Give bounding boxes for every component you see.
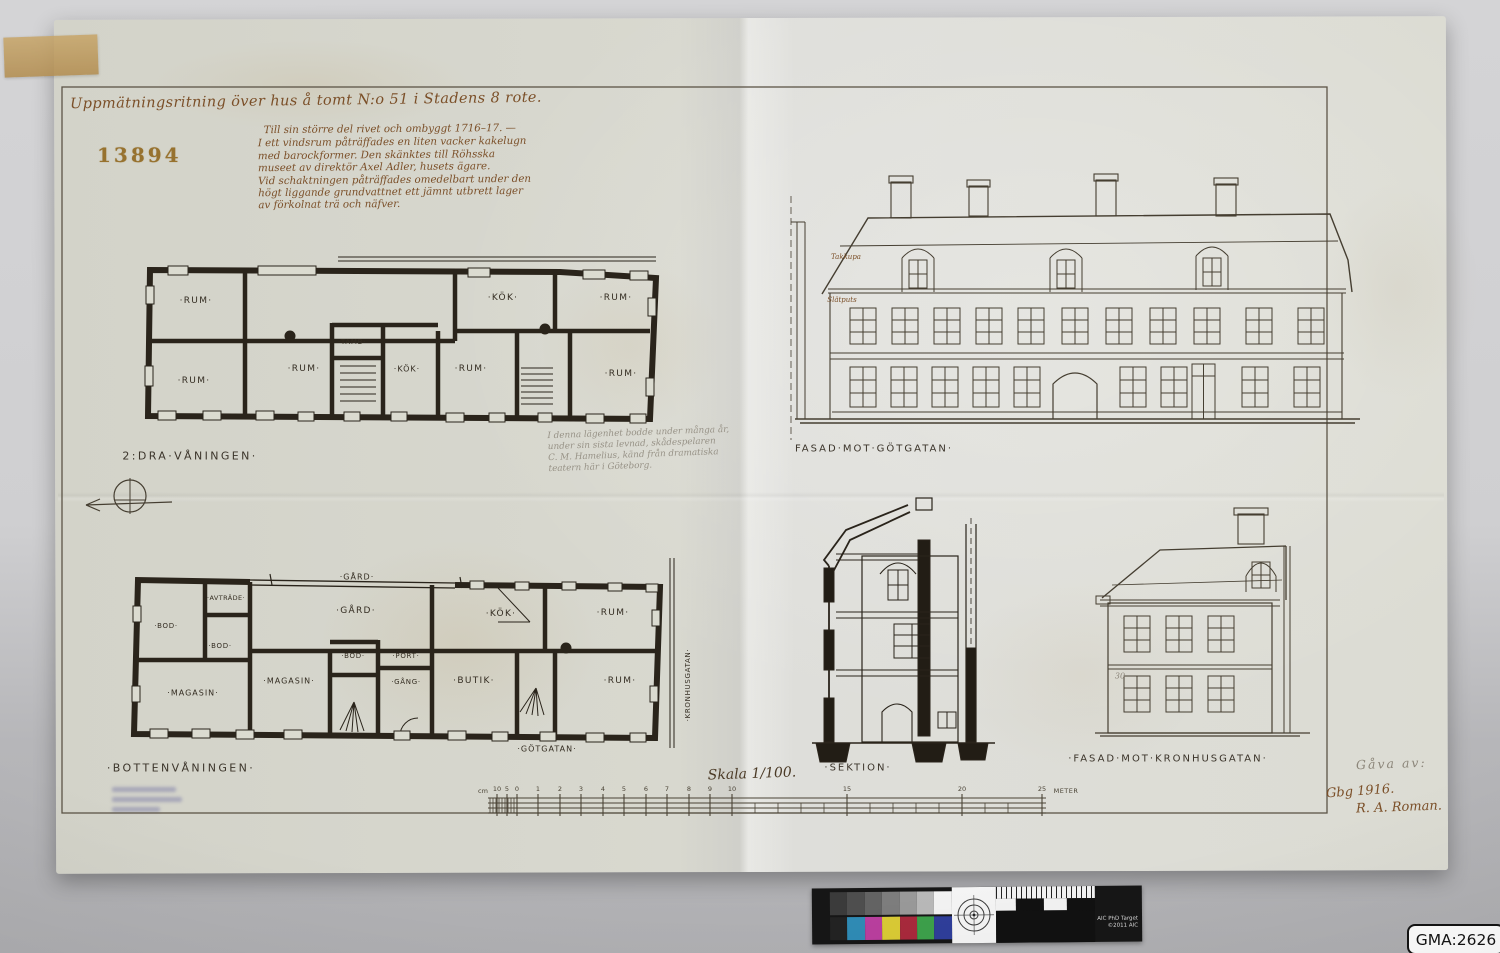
gray-patch-row (830, 891, 952, 915)
facade-annotation-wall: Slätputs (827, 296, 856, 304)
room-label: ·RUM· (604, 676, 637, 686)
color-calibration-target: AIC PhD Target ©2011 AIC (812, 886, 1142, 945)
archive-label-text: GMA:2626 (1416, 931, 1496, 949)
ink-note-line: av förkolnat trä och näfver. (258, 197, 531, 212)
bullseye-target (952, 887, 996, 943)
kronhusgatan-annotation: 30 (1115, 672, 1125, 681)
room-label: ·BOD· (154, 622, 178, 630)
scale-tick: 2 (558, 785, 562, 793)
facade-annotation-roof: Takkupa (831, 253, 861, 261)
ink-note: Till sin större del rivet och ombyggt 17… (258, 122, 532, 212)
scale-tick: 8 (687, 785, 691, 793)
calibration-label: AIC PhD Target ©2011 AIC (1095, 886, 1142, 942)
scale-tick: 3 (579, 785, 583, 793)
room-label: ·BOD· (208, 642, 232, 650)
street-label-kronhusgatan: ·KRONHUSGATAN· (684, 649, 692, 722)
scale-tick: 9 (708, 785, 712, 793)
scale-tick: 5 (622, 785, 626, 793)
scale-tick: 15 (843, 785, 851, 793)
elevation-caption-kronhusgatan: ·FASAD·MOT·KRONHUSGATAN· (1068, 754, 1268, 765)
scale-unit-meter: METER (1054, 787, 1079, 795)
room-label: ·GÅNG· (391, 678, 421, 686)
room-label: ·KÖK· (394, 365, 420, 374)
elevation-caption-gotgatan: FASAD·MOT·GÖTGATAN· (795, 444, 953, 455)
room-label: ·KÖK· (488, 293, 519, 303)
room-label: ·PORT· (392, 652, 419, 660)
scale-tick: 7 (665, 785, 669, 793)
scale-unit-cm: cm (478, 787, 488, 795)
room-label: ·RUM· (597, 608, 630, 618)
room-label: ·RUM· (288, 364, 321, 374)
bullseye-icon (954, 895, 994, 935)
calibration-patches (830, 887, 952, 944)
plan-caption-upper: 2:DRA·VÅNINGEN· (122, 450, 257, 463)
calibration-ruler (996, 886, 1095, 943)
section-caption: ·SEKTION· (824, 763, 891, 774)
plan-caption-ground: ·BOTTENVÅNINGEN· (107, 762, 255, 775)
scale-caption: Skala 1/100. (707, 764, 796, 783)
room-label: ·BUTIK· (453, 676, 495, 686)
street-label-gotgatan: ·GÖTGATAN· (517, 745, 576, 754)
calibration-label-line: ©2011 AIC (1095, 923, 1138, 930)
room-label: ·RUM· (605, 369, 638, 379)
room-label: ·MAGASIN· (263, 677, 314, 686)
donation-note: Gåva av: (1356, 755, 1427, 772)
inventory-stamp-number: 13894 (97, 143, 182, 167)
room-label: ·RUM· (180, 296, 213, 306)
tape-fragment (3, 34, 98, 77)
pencil-note: I denna lägenhet bodde under många år, u… (547, 425, 730, 475)
scale-tick: 1 (536, 785, 540, 793)
faint-museum-stamp (112, 782, 188, 828)
color-patch-row (830, 916, 952, 940)
room-label: ·TAMB· (338, 338, 366, 346)
scale-tick: 10 (728, 785, 736, 793)
room-label: ·BOD· (341, 652, 365, 660)
archive-label: GMA:2626 (1407, 924, 1500, 953)
room-label: ·KÖK· (486, 609, 517, 619)
scale-tick: 4 (601, 785, 605, 793)
room-label: ·GÅRD· (336, 606, 376, 616)
room-label: ·GÅRD· (340, 573, 374, 582)
scale-tick: 20 (958, 785, 966, 793)
scale-tick: 25 (1038, 785, 1046, 793)
room-label: ·RUM· (600, 293, 633, 303)
scale-tick: 10 (493, 785, 501, 793)
calibration-left-pad (812, 888, 830, 944)
scale-tick: 6 (644, 785, 648, 793)
room-label: ·MAGASIN· (167, 689, 218, 698)
scale-tick: 0 (515, 785, 519, 793)
signature-name: R. A. Roman. (1356, 799, 1442, 817)
room-label: ·RUM· (178, 376, 211, 386)
room-label: ·RUM· (455, 364, 488, 374)
photograph-of-drawing: Uppmätningsritning över hus å tomt N:o 5… (0, 0, 1500, 953)
scale-tick: 5 (505, 785, 509, 793)
room-label: ·AVTRÄDE· (207, 594, 245, 602)
